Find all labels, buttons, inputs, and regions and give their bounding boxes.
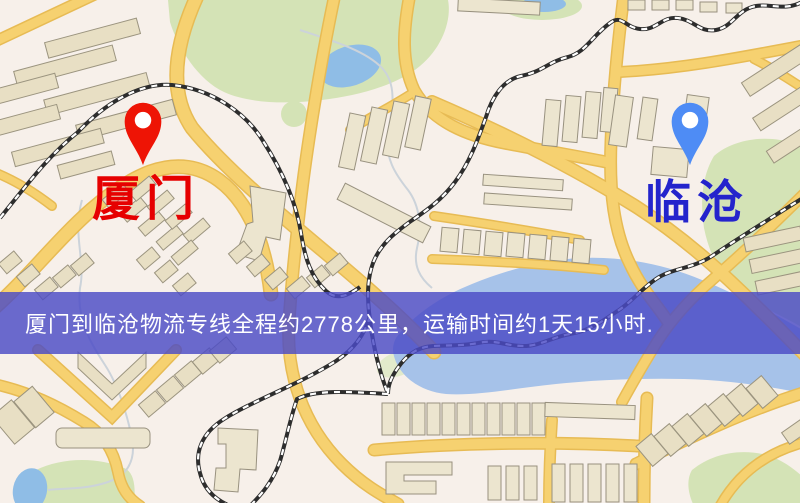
origin-pin[interactable]: [121, 98, 165, 168]
map-artwork: [0, 0, 800, 503]
route-info-text: 厦门到临沧物流专线全程约2778公里，运输时间约1天15小时.: [25, 307, 654, 339]
pin-hole: [135, 112, 152, 129]
destination-label: 临沧: [645, 179, 749, 225]
map-canvas[interactable]: 厦门 临沧 厦门到临沧物流专线全程约2778公里，运输时间约1天15小时.: [0, 0, 800, 503]
origin-label: 厦门: [92, 176, 200, 224]
pin-hole: [682, 112, 699, 129]
destination-pin[interactable]: [668, 98, 712, 168]
route-info-banner: 厦门到临沧物流专线全程约2778公里，运输时间约1天15小时.: [0, 292, 800, 354]
